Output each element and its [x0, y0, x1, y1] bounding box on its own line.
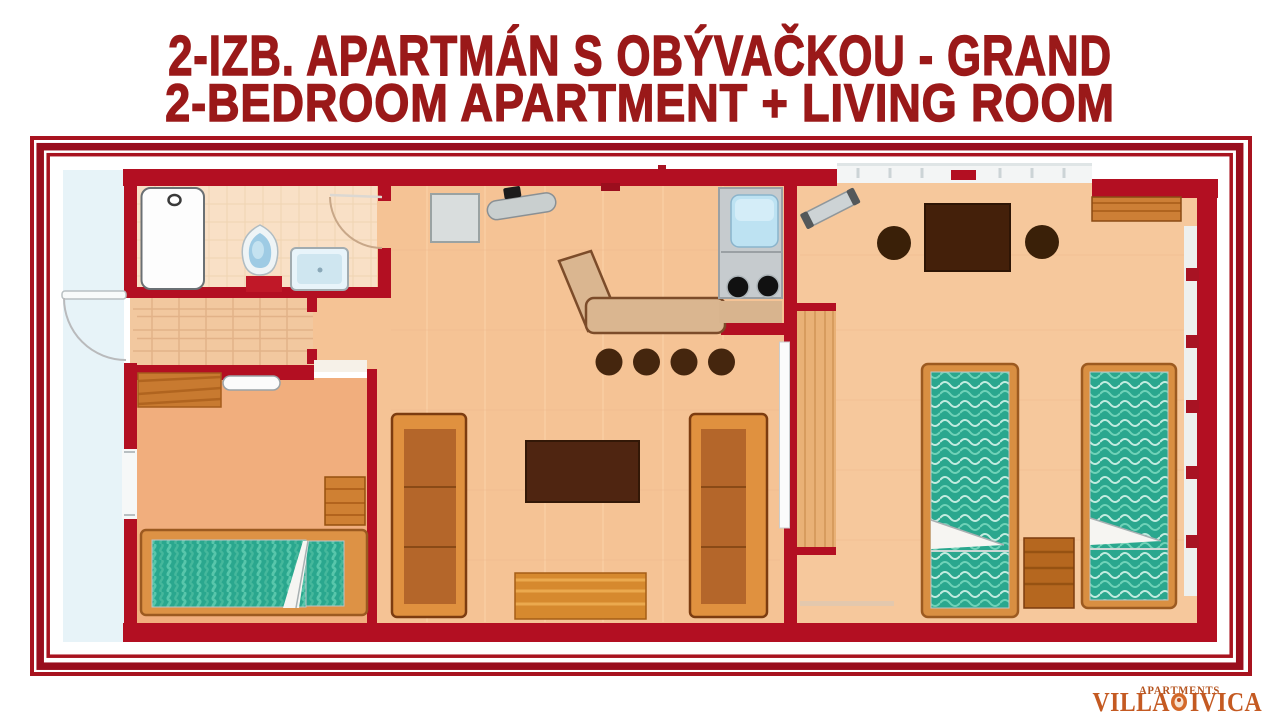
svg-text:2-BEDROOM APARTMENT + LIVING: 2-BEDROOM APARTMENT + LIVING ROOM — [165, 74, 1115, 133]
svg-text:VILLA: VILLA — [1093, 687, 1171, 718]
svg-text:IVICA: IVICA — [1190, 687, 1262, 718]
